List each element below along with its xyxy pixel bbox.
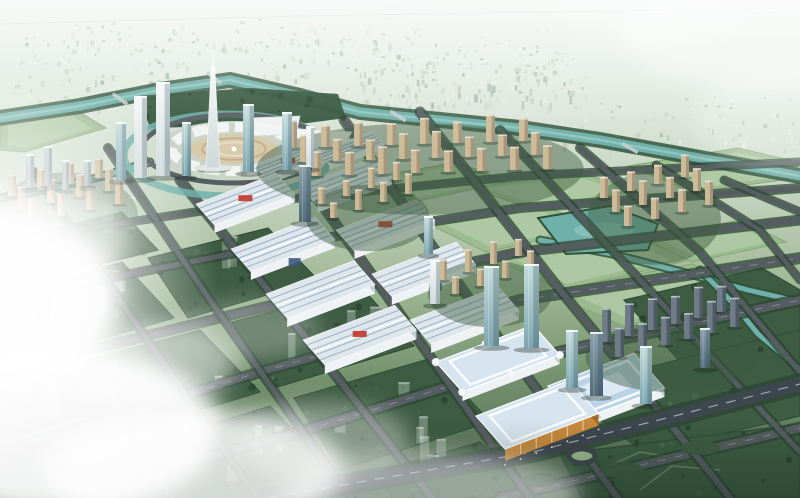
- corner-dome: [432, 358, 440, 366]
- entrance-glass: [289, 258, 301, 265]
- red-roof-accent: [353, 331, 367, 337]
- city-aerial-svg: [0, 0, 800, 498]
- cluster-greenery: [585, 322, 756, 392]
- aerial-masterplan-rendering: [0, 0, 800, 498]
- corner-dome: [556, 351, 564, 359]
- cloud: [180, 300, 320, 360]
- red-roof-accent: [238, 195, 252, 201]
- corner-dome: [458, 388, 466, 396]
